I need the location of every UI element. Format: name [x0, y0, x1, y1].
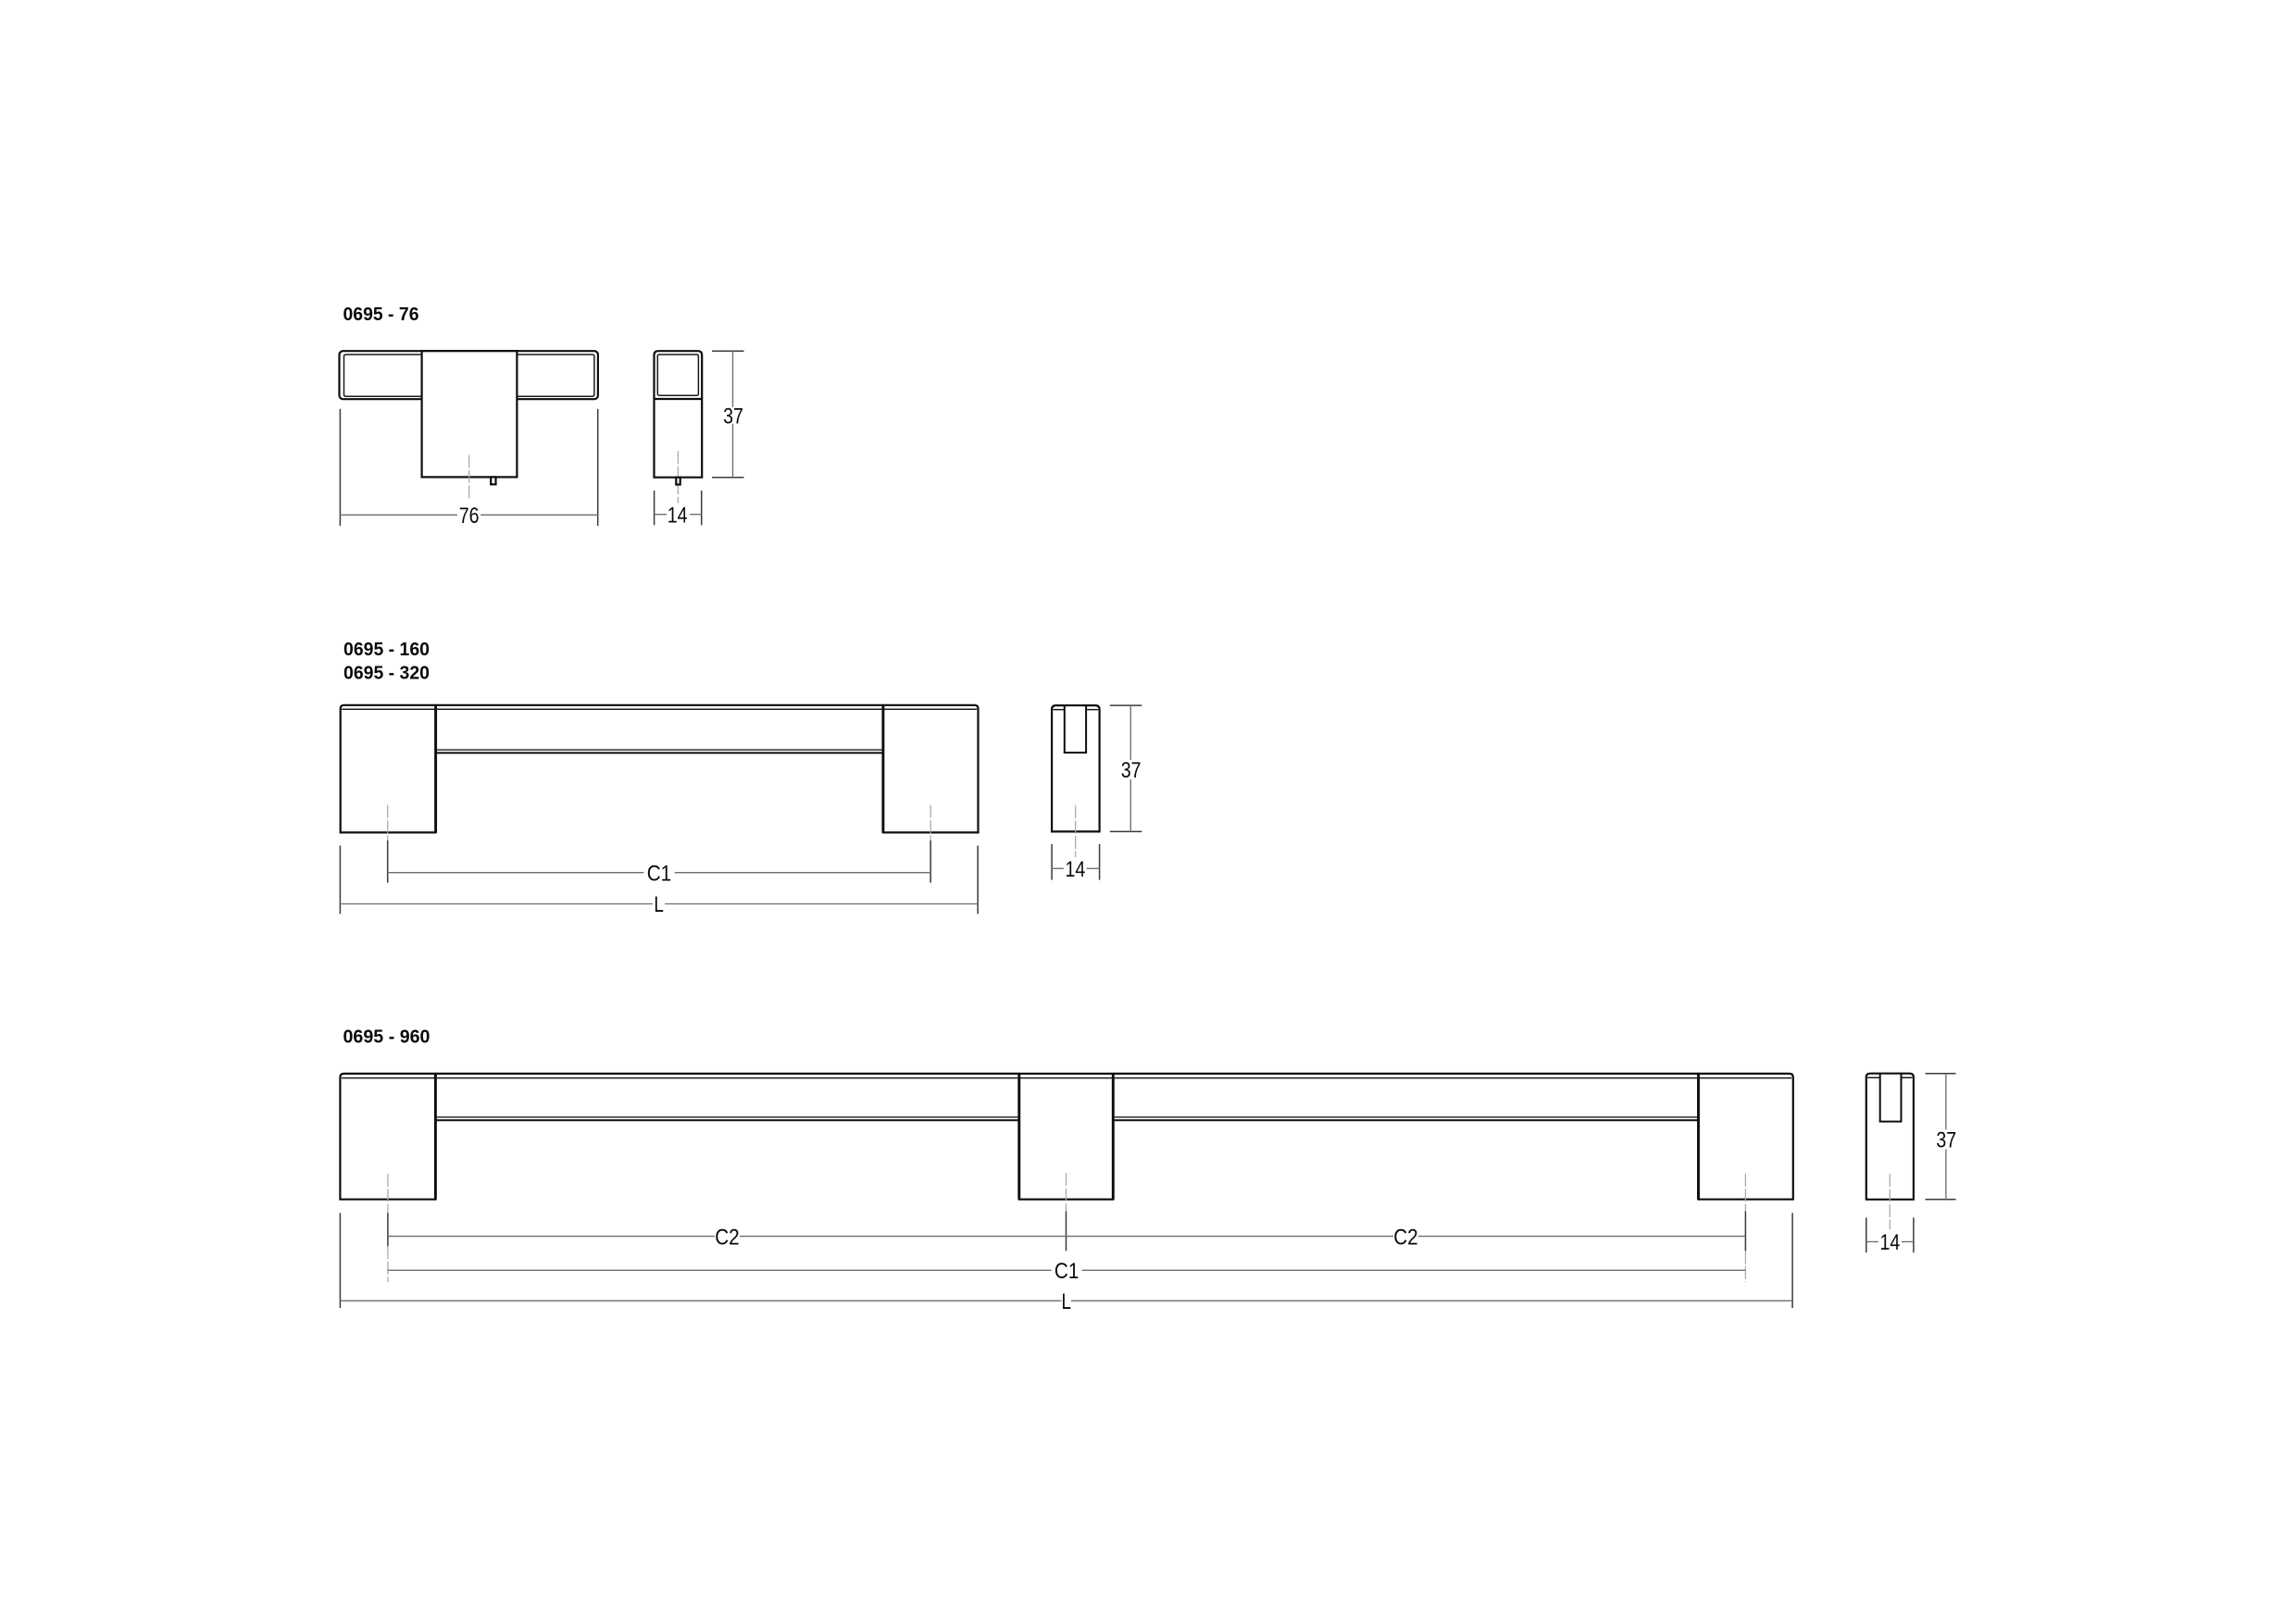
- svg-text:14: 14: [1066, 857, 1086, 882]
- svg-text:37: 37: [723, 404, 743, 429]
- svg-text:C2: C2: [1393, 1225, 1418, 1250]
- svg-text:0695 - 160: 0695 - 160: [343, 639, 430, 660]
- svg-text:C1: C1: [647, 861, 672, 886]
- svg-text:37: 37: [1121, 758, 1142, 783]
- svg-text:0695 - 960: 0695 - 960: [343, 1027, 430, 1048]
- svg-text:14: 14: [668, 503, 688, 528]
- svg-text:L: L: [654, 892, 664, 917]
- svg-text:L: L: [1062, 1289, 1072, 1314]
- svg-text:0695 - 320: 0695 - 320: [343, 662, 430, 683]
- svg-text:37: 37: [1936, 1128, 1956, 1153]
- svg-text:14: 14: [1880, 1230, 1901, 1255]
- svg-text:76: 76: [459, 504, 480, 529]
- svg-text:C2: C2: [715, 1225, 740, 1250]
- svg-text:C1: C1: [1054, 1259, 1079, 1284]
- svg-text:0695 - 76: 0695 - 76: [343, 304, 419, 325]
